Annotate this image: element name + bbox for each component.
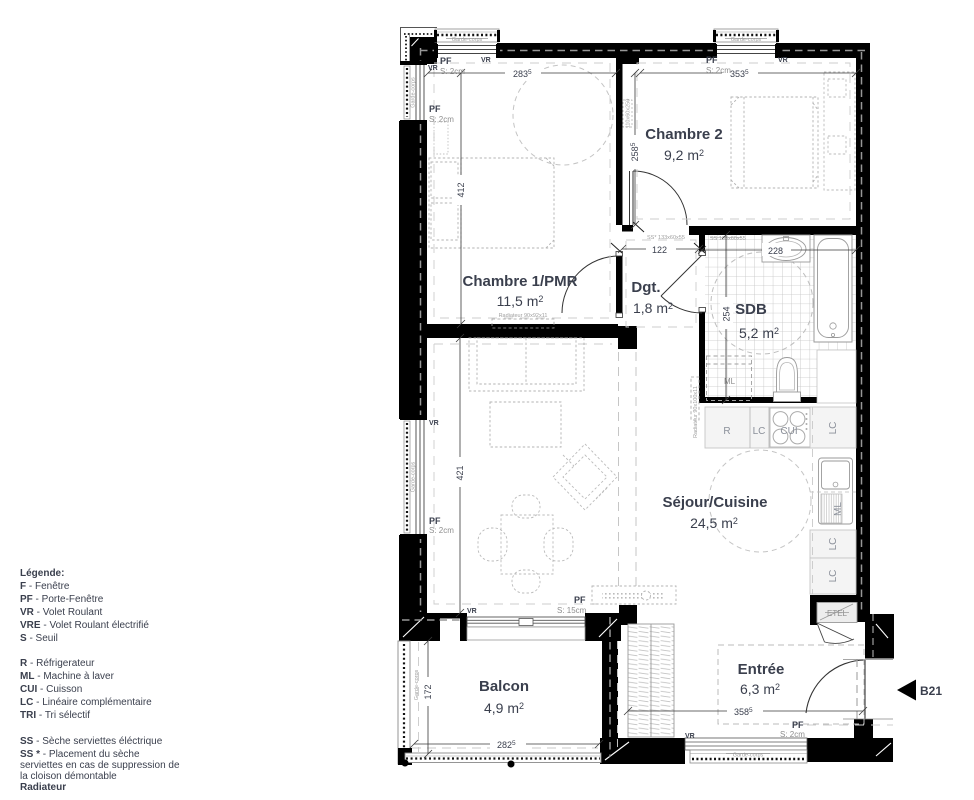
svg-text:R - Réfrigerateur: R - Réfrigerateur — [20, 658, 95, 669]
svg-text:LC: LC — [828, 538, 839, 551]
svg-text:LC: LC — [828, 570, 839, 583]
svg-text:Radiateur 90x92x11: Radiateur 90x92x11 — [499, 313, 548, 319]
svg-text:Garde-corps: Garde-corps — [414, 669, 420, 700]
svg-text:serviettes en cas de suppressi: serviettes en cas de suppression de — [20, 760, 180, 771]
svg-text:110x60x250: 110x60x250 — [626, 99, 632, 129]
svg-text:Balcon: Balcon — [479, 678, 529, 695]
svg-text:ML - Machine à laver: ML - Machine à laver — [20, 671, 115, 682]
svg-text:PF: PF — [429, 104, 441, 114]
svg-text:Dgt.: Dgt. — [631, 279, 660, 296]
svg-text:ETEL: ETEL — [827, 609, 848, 618]
svg-text:Séjour/Cuisine: Séjour/Cuisine — [662, 494, 767, 511]
svg-text:9,2 m2: 9,2 m2 — [664, 147, 704, 163]
svg-text:PF: PF — [574, 595, 586, 605]
svg-text:la cloison démontable: la cloison démontable — [20, 771, 117, 782]
svg-text:S: 2cm: S: 2cm — [780, 730, 805, 739]
svg-text:Garde-corps: Garde-corps — [411, 77, 417, 108]
svg-text:SDB: SDB — [735, 301, 767, 318]
svg-text:CUI: CUI — [780, 426, 797, 437]
svg-text:S: 2cm: S: 2cm — [429, 115, 454, 124]
svg-text:Radiateur 90x100x11: Radiateur 90x100x11 — [693, 386, 699, 438]
svg-text:S: 2cm: S: 2cm — [440, 67, 465, 76]
svg-text:421: 421 — [455, 465, 465, 480]
svg-text:F - Fenêtre: F - Fenêtre — [20, 581, 70, 592]
svg-text:172: 172 — [423, 684, 433, 699]
svg-text:LC - Linéaire complémentaire: LC - Linéaire complémentaire — [20, 697, 152, 708]
svg-text:228: 228 — [768, 246, 783, 256]
svg-text:PF: PF — [440, 56, 452, 66]
svg-text:1,8 m2: 1,8 m2 — [633, 300, 673, 316]
svg-text:VR: VR — [428, 65, 438, 72]
svg-text:TRI - Tri sélectif: TRI - Tri sélectif — [20, 710, 90, 721]
svg-text:Chambre 1/PMR: Chambre 1/PMR — [462, 273, 577, 290]
svg-text:122: 122 — [652, 245, 667, 255]
svg-text:Chambre 2: Chambre 2 — [645, 126, 723, 143]
svg-text:254: 254 — [722, 306, 732, 321]
svg-text:PF - Porte-Fenêtre: PF - Porte-Fenêtre — [20, 594, 104, 605]
svg-text:Garde-corps: Garde-corps — [731, 37, 762, 43]
svg-text:Garde-corps: Garde-corps — [411, 461, 417, 492]
svg-text:PF: PF — [429, 516, 441, 526]
svg-text:SS 133x60x55: SS 133x60x55 — [710, 236, 746, 242]
svg-text:LC: LC — [828, 422, 839, 435]
svg-text:R: R — [723, 426, 730, 437]
svg-text:SS * - Placement du sèche: SS * - Placement du sèche — [20, 749, 140, 760]
svg-text:VR: VR — [429, 420, 439, 427]
svg-text:CUI - Cuisson: CUI - Cuisson — [20, 684, 82, 695]
svg-text:S: 15cm: S: 15cm — [557, 606, 587, 615]
svg-text:VR: VR — [685, 733, 695, 740]
svg-text:24,5 m2: 24,5 m2 — [690, 515, 738, 531]
svg-text:PF: PF — [792, 720, 804, 730]
svg-text:S - Seuil: S - Seuil — [20, 633, 58, 644]
svg-text:412: 412 — [456, 182, 466, 197]
svg-text:11,5 m2: 11,5 m2 — [497, 293, 544, 309]
svg-text:VR - Volet Roulant: VR - Volet Roulant — [20, 607, 103, 618]
svg-text:VR: VR — [778, 57, 788, 64]
svg-text:PF: PF — [706, 55, 718, 65]
svg-text:VR: VR — [481, 57, 491, 64]
svg-text:S: 2cm: S: 2cm — [429, 526, 454, 535]
svg-text:Radiateur: Radiateur — [20, 782, 66, 793]
svg-text:VRE - Volet Roulant électrifié: VRE - Volet Roulant électrifié — [20, 620, 149, 631]
svg-text:S: 2cm: S: 2cm — [706, 66, 731, 75]
svg-text:Légende:: Légende: — [20, 568, 64, 579]
svg-text:5,2 m2: 5,2 m2 — [739, 325, 779, 341]
svg-text:VR: VR — [467, 608, 477, 615]
svg-text:6,3 m2: 6,3 m2 — [740, 681, 780, 697]
svg-text:Garde-corps: Garde-corps — [452, 37, 483, 43]
svg-text:Entrée: Entrée — [738, 661, 785, 678]
svg-text:B21: B21 — [920, 684, 942, 698]
svg-text:ML: ML — [833, 502, 844, 516]
svg-text:SS - Sèche serviettes éléctriq: SS - Sèche serviettes éléctrique — [20, 736, 163, 747]
svg-text:LC: LC — [753, 426, 766, 437]
svg-text:4,9 m2: 4,9 m2 — [484, 700, 524, 716]
